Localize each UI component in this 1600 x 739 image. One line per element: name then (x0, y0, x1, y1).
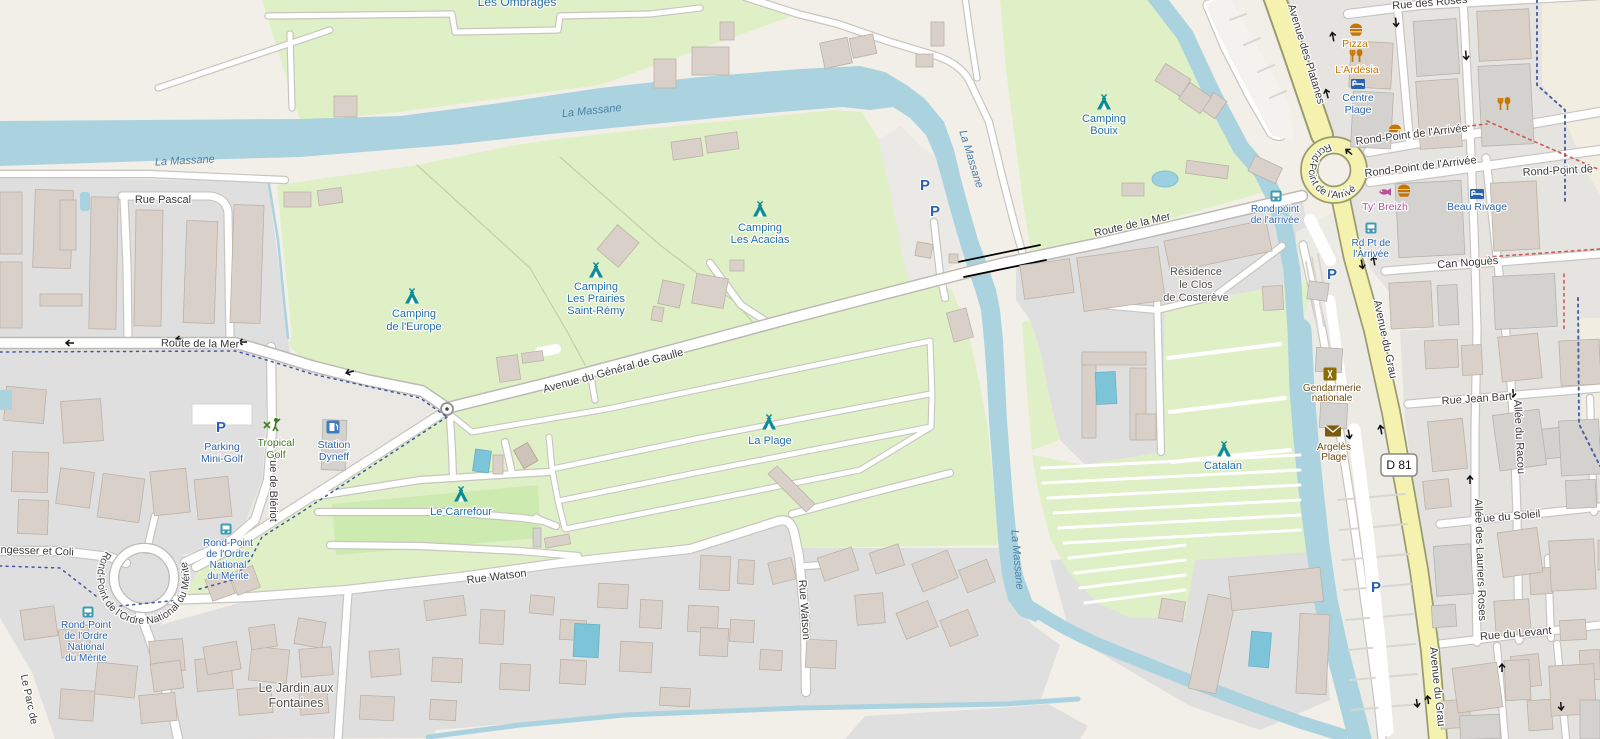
svg-text:Le Jardin aux: Le Jardin aux (258, 681, 334, 695)
svg-text:Parking: Parking (204, 441, 240, 453)
svg-text:La Plage: La Plage (748, 435, 791, 447)
svg-text:de l'Ordre: de l'Ordre (206, 549, 250, 560)
svg-text:Rue de Blériot: Rue de Blériot (267, 452, 279, 522)
svg-text:Rue Pascal: Rue Pascal (135, 194, 191, 206)
svg-text:Camping: Camping (392, 308, 436, 320)
svg-text:de Costerève: de Costerève (1163, 292, 1228, 304)
svg-text:Rond point: Rond point (1251, 204, 1300, 215)
svg-text:Les Acacias: Les Acacias (731, 234, 790, 246)
svg-text:l'Arrivée: l'Arrivée (1353, 249, 1389, 260)
svg-text:Centre: Centre (1342, 92, 1374, 104)
svg-text:Pizza: Pizza (1342, 38, 1368, 50)
svg-text:P: P (930, 203, 940, 220)
svg-text:Résidence: Résidence (1170, 266, 1222, 278)
svg-text:D 81: D 81 (1386, 458, 1412, 472)
svg-text:Catalan: Catalan (1204, 460, 1242, 472)
svg-text:L'Ardésia: L'Ardésia (1335, 64, 1379, 76)
svg-text:P: P (216, 419, 226, 436)
svg-text:P: P (920, 177, 930, 194)
svg-text:Route de la Mer: Route de la Mer (161, 337, 240, 350)
svg-text:Tropical: Tropical (258, 437, 295, 449)
svg-text:Plage: Plage (1321, 452, 1347, 463)
svg-text:du Mérite: du Mérite (207, 571, 249, 582)
svg-text:Dyneff: Dyneff (319, 451, 349, 463)
svg-text:nationale: nationale (1312, 393, 1353, 404)
svg-text:Bouix: Bouix (1090, 125, 1118, 137)
svg-text:P: P (1371, 579, 1381, 596)
svg-text:Saint-Rémy: Saint-Rémy (567, 305, 625, 317)
svg-text:Les Prairies: Les Prairies (567, 293, 626, 305)
svg-text:National: National (68, 642, 105, 653)
svg-text:de l'arrivée: de l'arrivée (1251, 215, 1300, 226)
svg-text:Camping: Camping (574, 281, 618, 293)
svg-text:Ty' Breizh: Ty' Breizh (1362, 201, 1408, 213)
svg-text:de l'Ordre: de l'Ordre (64, 631, 108, 642)
svg-text:Fontaines: Fontaines (269, 696, 324, 710)
svg-text:Rond-Point: Rond-Point (203, 538, 253, 549)
svg-text:Plage: Plage (1345, 104, 1372, 116)
svg-text:Camping: Camping (1082, 113, 1126, 125)
svg-text:P: P (1327, 266, 1337, 283)
svg-text:National: National (210, 560, 247, 571)
svg-text:Beau Rivage: Beau Rivage (1447, 201, 1507, 213)
svg-text:Mini-Golf: Mini-Golf (201, 453, 243, 465)
svg-text:Golf: Golf (266, 449, 285, 461)
svg-text:Nungesser et Coli: Nungesser et Coli (0, 543, 74, 558)
svg-text:du Mérite: du Mérite (65, 653, 107, 664)
svg-text:Rond-Point: Rond-Point (61, 620, 111, 631)
svg-text:Le Carrefour: Le Carrefour (430, 506, 492, 518)
svg-text:Les Ombrages: Les Ombrages (478, 0, 557, 9)
svg-text:Rd Pt de: Rd Pt de (1352, 238, 1391, 249)
svg-text:de l'Europe: de l'Europe (386, 321, 441, 333)
svg-text:Camping: Camping (738, 222, 782, 234)
svg-text:le Clos: le Clos (1179, 279, 1213, 291)
svg-text:Station: Station (318, 439, 351, 451)
